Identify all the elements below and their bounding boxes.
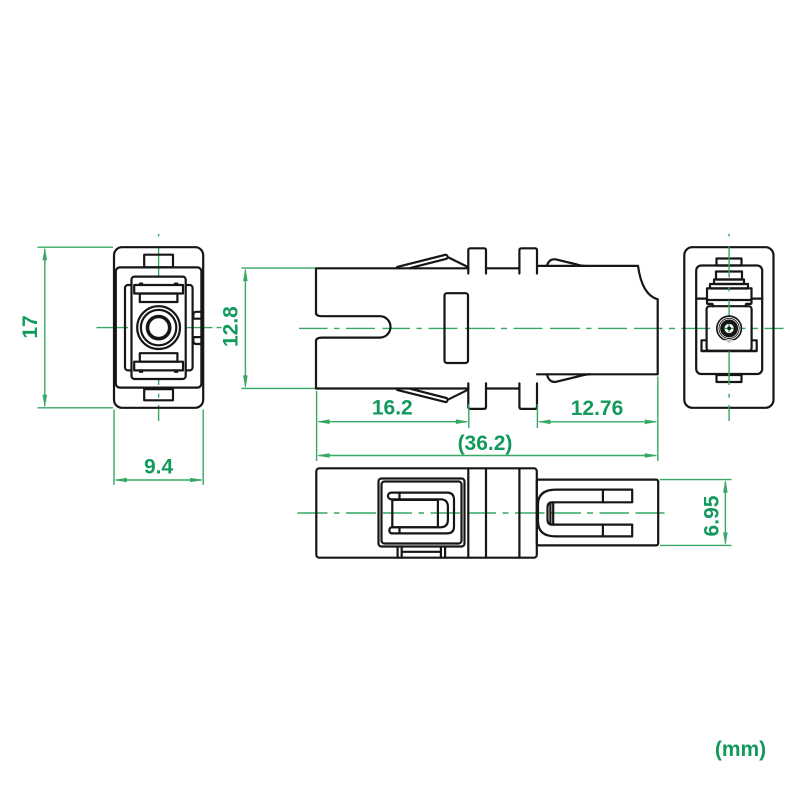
svg-text:9.4: 9.4 [144, 456, 174, 479]
svg-text:16.2: 16.2 [372, 396, 413, 419]
svg-text:12.76: 12.76 [571, 397, 624, 420]
svg-text:(36.2): (36.2) [458, 432, 513, 455]
svg-text:17: 17 [19, 315, 42, 338]
svg-text:(mm): (mm) [715, 738, 766, 761]
svg-text:6.95: 6.95 [700, 495, 723, 536]
svg-text:12.8: 12.8 [219, 306, 242, 347]
